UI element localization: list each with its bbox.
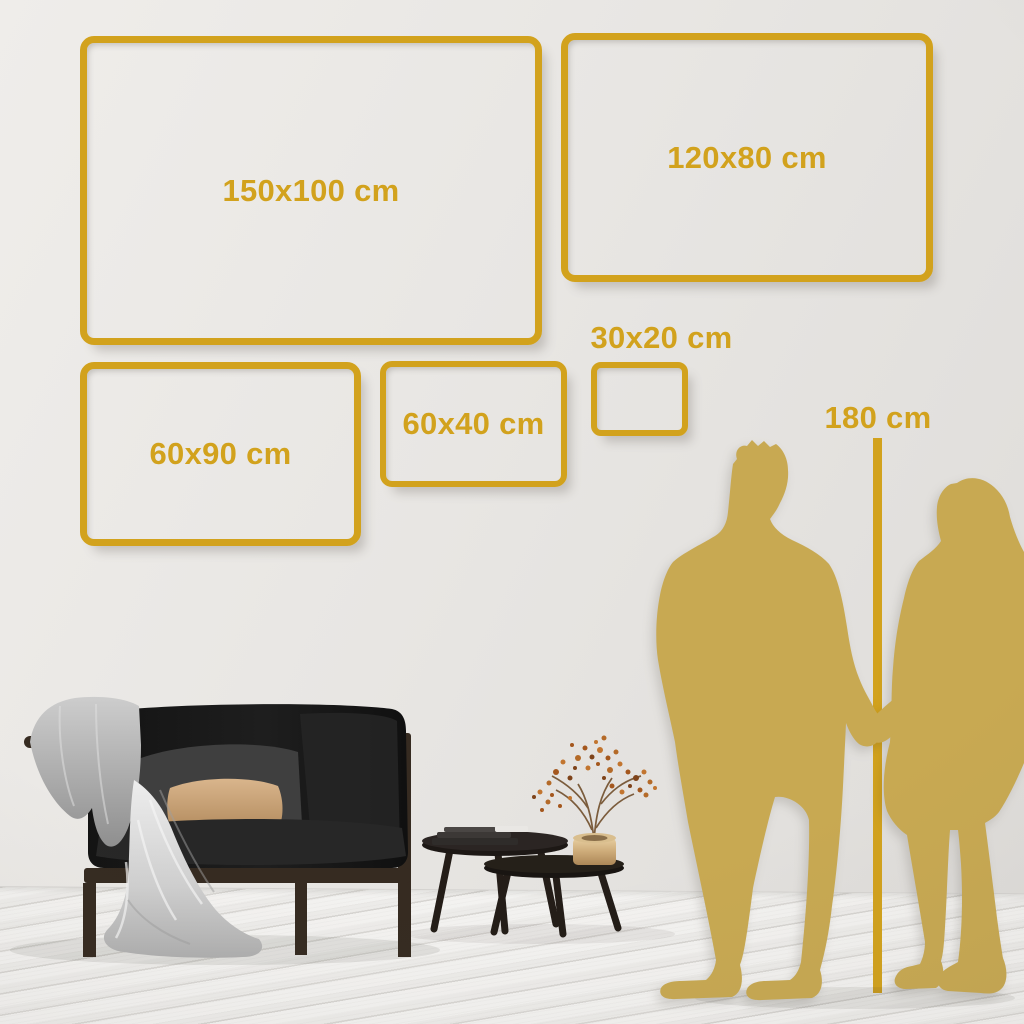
size-label-60x90: 60x90 cm bbox=[149, 436, 291, 472]
books-illustration bbox=[432, 826, 528, 845]
throw-blanket bbox=[30, 697, 141, 847]
height-reference-line bbox=[873, 438, 882, 993]
size-frame-60x90: 60x90 cm bbox=[80, 362, 361, 546]
height-reference-label: 180 cm bbox=[812, 400, 944, 436]
berries bbox=[532, 736, 657, 813]
dried-branch-illustration bbox=[532, 736, 657, 841]
size-frame-30x20: 30x20 cm bbox=[591, 362, 688, 436]
size-label-120x80: 120x80 cm bbox=[667, 140, 827, 176]
size-frame-60x40: 60x40 cm bbox=[380, 361, 567, 487]
brass-vase-illustration bbox=[573, 833, 616, 865]
size-label-60x40: 60x40 cm bbox=[402, 406, 544, 442]
size-label-30x20: 30x20 cm bbox=[590, 320, 732, 356]
wood-plank-floor bbox=[0, 886, 1024, 1024]
size-frame-120x80: 120x80 cm bbox=[561, 33, 933, 282]
size-frame-150x100: 150x100 cm bbox=[80, 36, 542, 345]
size-guide-scene: 150x100 cm 120x80 cm 60x90 cm 60x40 cm 3… bbox=[0, 0, 1024, 1024]
size-label-150x100: 150x100 cm bbox=[222, 173, 399, 209]
